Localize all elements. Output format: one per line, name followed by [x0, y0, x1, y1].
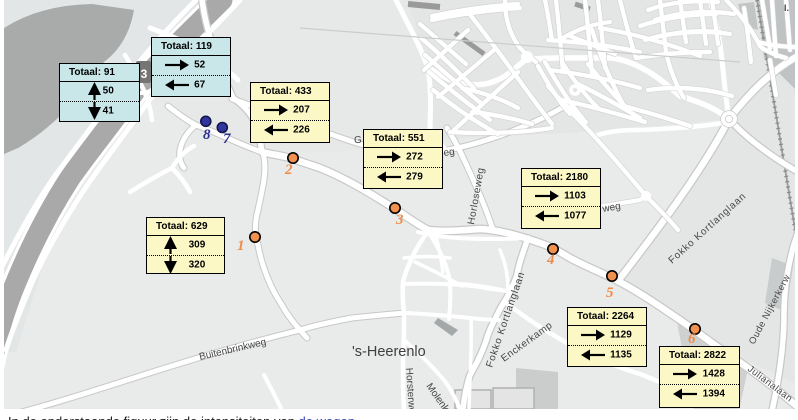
- svg-text:G: G: [354, 135, 362, 146]
- svg-text:3: 3: [141, 67, 148, 81]
- svg-text:eg: eg: [443, 147, 456, 159]
- svg-text:'s-Heerenlo: 's-Heerenlo: [352, 344, 426, 360]
- svg-text:l.: l.: [784, 3, 789, 13]
